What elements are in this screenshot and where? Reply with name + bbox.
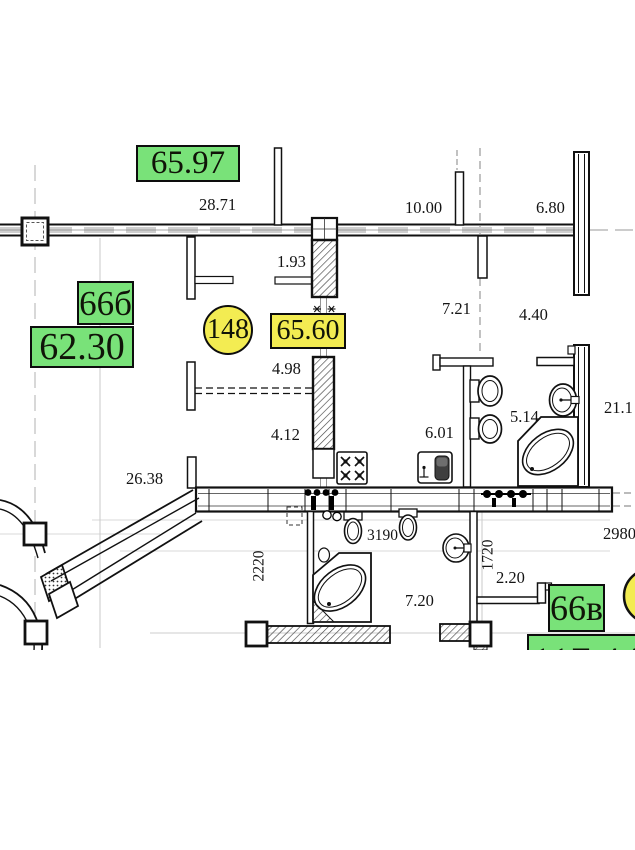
hatched-column-upper (312, 218, 337, 297)
bathtub-icon-upper (514, 417, 582, 486)
room-box-66v: 66в (548, 584, 605, 632)
hatched-column-lower (313, 357, 334, 478)
dim-4-98: 4.98 (272, 361, 301, 378)
dim-2220: 2220 (251, 551, 267, 582)
dim-1720: 1720 (480, 540, 496, 571)
bottom-window-wall (196, 488, 612, 512)
dim-1-93: 1.93 (277, 254, 306, 271)
dim-7-20: 7.20 (405, 593, 434, 610)
dim-2-20: 2.20 (496, 570, 525, 587)
dim-21-1: 21.1 (604, 400, 633, 417)
stair-corridor (0, 490, 202, 650)
area-box-62-30: 62.30 (30, 326, 134, 368)
apartment-circle-clipped (624, 569, 635, 623)
dim-6-01: 6.01 (425, 425, 454, 442)
washbasin-icon-lower (443, 534, 471, 562)
toilet-icon-upper-2 (470, 415, 502, 443)
kitchen-sink-icon (418, 452, 452, 483)
floor-plan-clip: 65.97 66б 62.30 148 65.60 66в 117.44 28.… (0, 0, 635, 650)
toilet-icon-lower-2 (399, 509, 417, 540)
bathtub-icon-lower (306, 553, 374, 622)
dim-5-14: 5.14 (510, 409, 539, 426)
floor-plan-screenshot: 65.97 66б 62.30 148 65.60 66в 117.44 28.… (0, 0, 635, 850)
area-box-117-44: 117.44 (527, 634, 635, 650)
top-exterior-wall (0, 225, 588, 236)
room-box-66b: 66б (77, 281, 134, 325)
dim-4-12: 4.12 (271, 427, 300, 444)
apartment-circle-148: 148 (203, 305, 253, 355)
stove-icon (337, 452, 367, 484)
lower-balcony-structures (246, 622, 491, 650)
dim-26-38: 26.38 (126, 471, 163, 488)
area-box-65-60: 65.60 (270, 313, 346, 349)
toilet-icon-lower-1 (344, 512, 362, 544)
dim-10-00: 10.00 (405, 200, 442, 217)
area-box-65-97: 65.97 (136, 145, 240, 182)
toilet-icon-upper-1 (470, 376, 502, 406)
dim-2980: 2980 (603, 526, 635, 543)
dim-28-71: 28.71 (199, 197, 236, 214)
column-top-left (22, 218, 48, 245)
small-sink-icon-lower (319, 548, 330, 562)
dim-7-21: 7.21 (442, 301, 471, 318)
dim-6-80: 6.80 (536, 200, 565, 217)
dim-4-40: 4.40 (519, 307, 548, 324)
dim-3190: 3190 (367, 528, 398, 544)
